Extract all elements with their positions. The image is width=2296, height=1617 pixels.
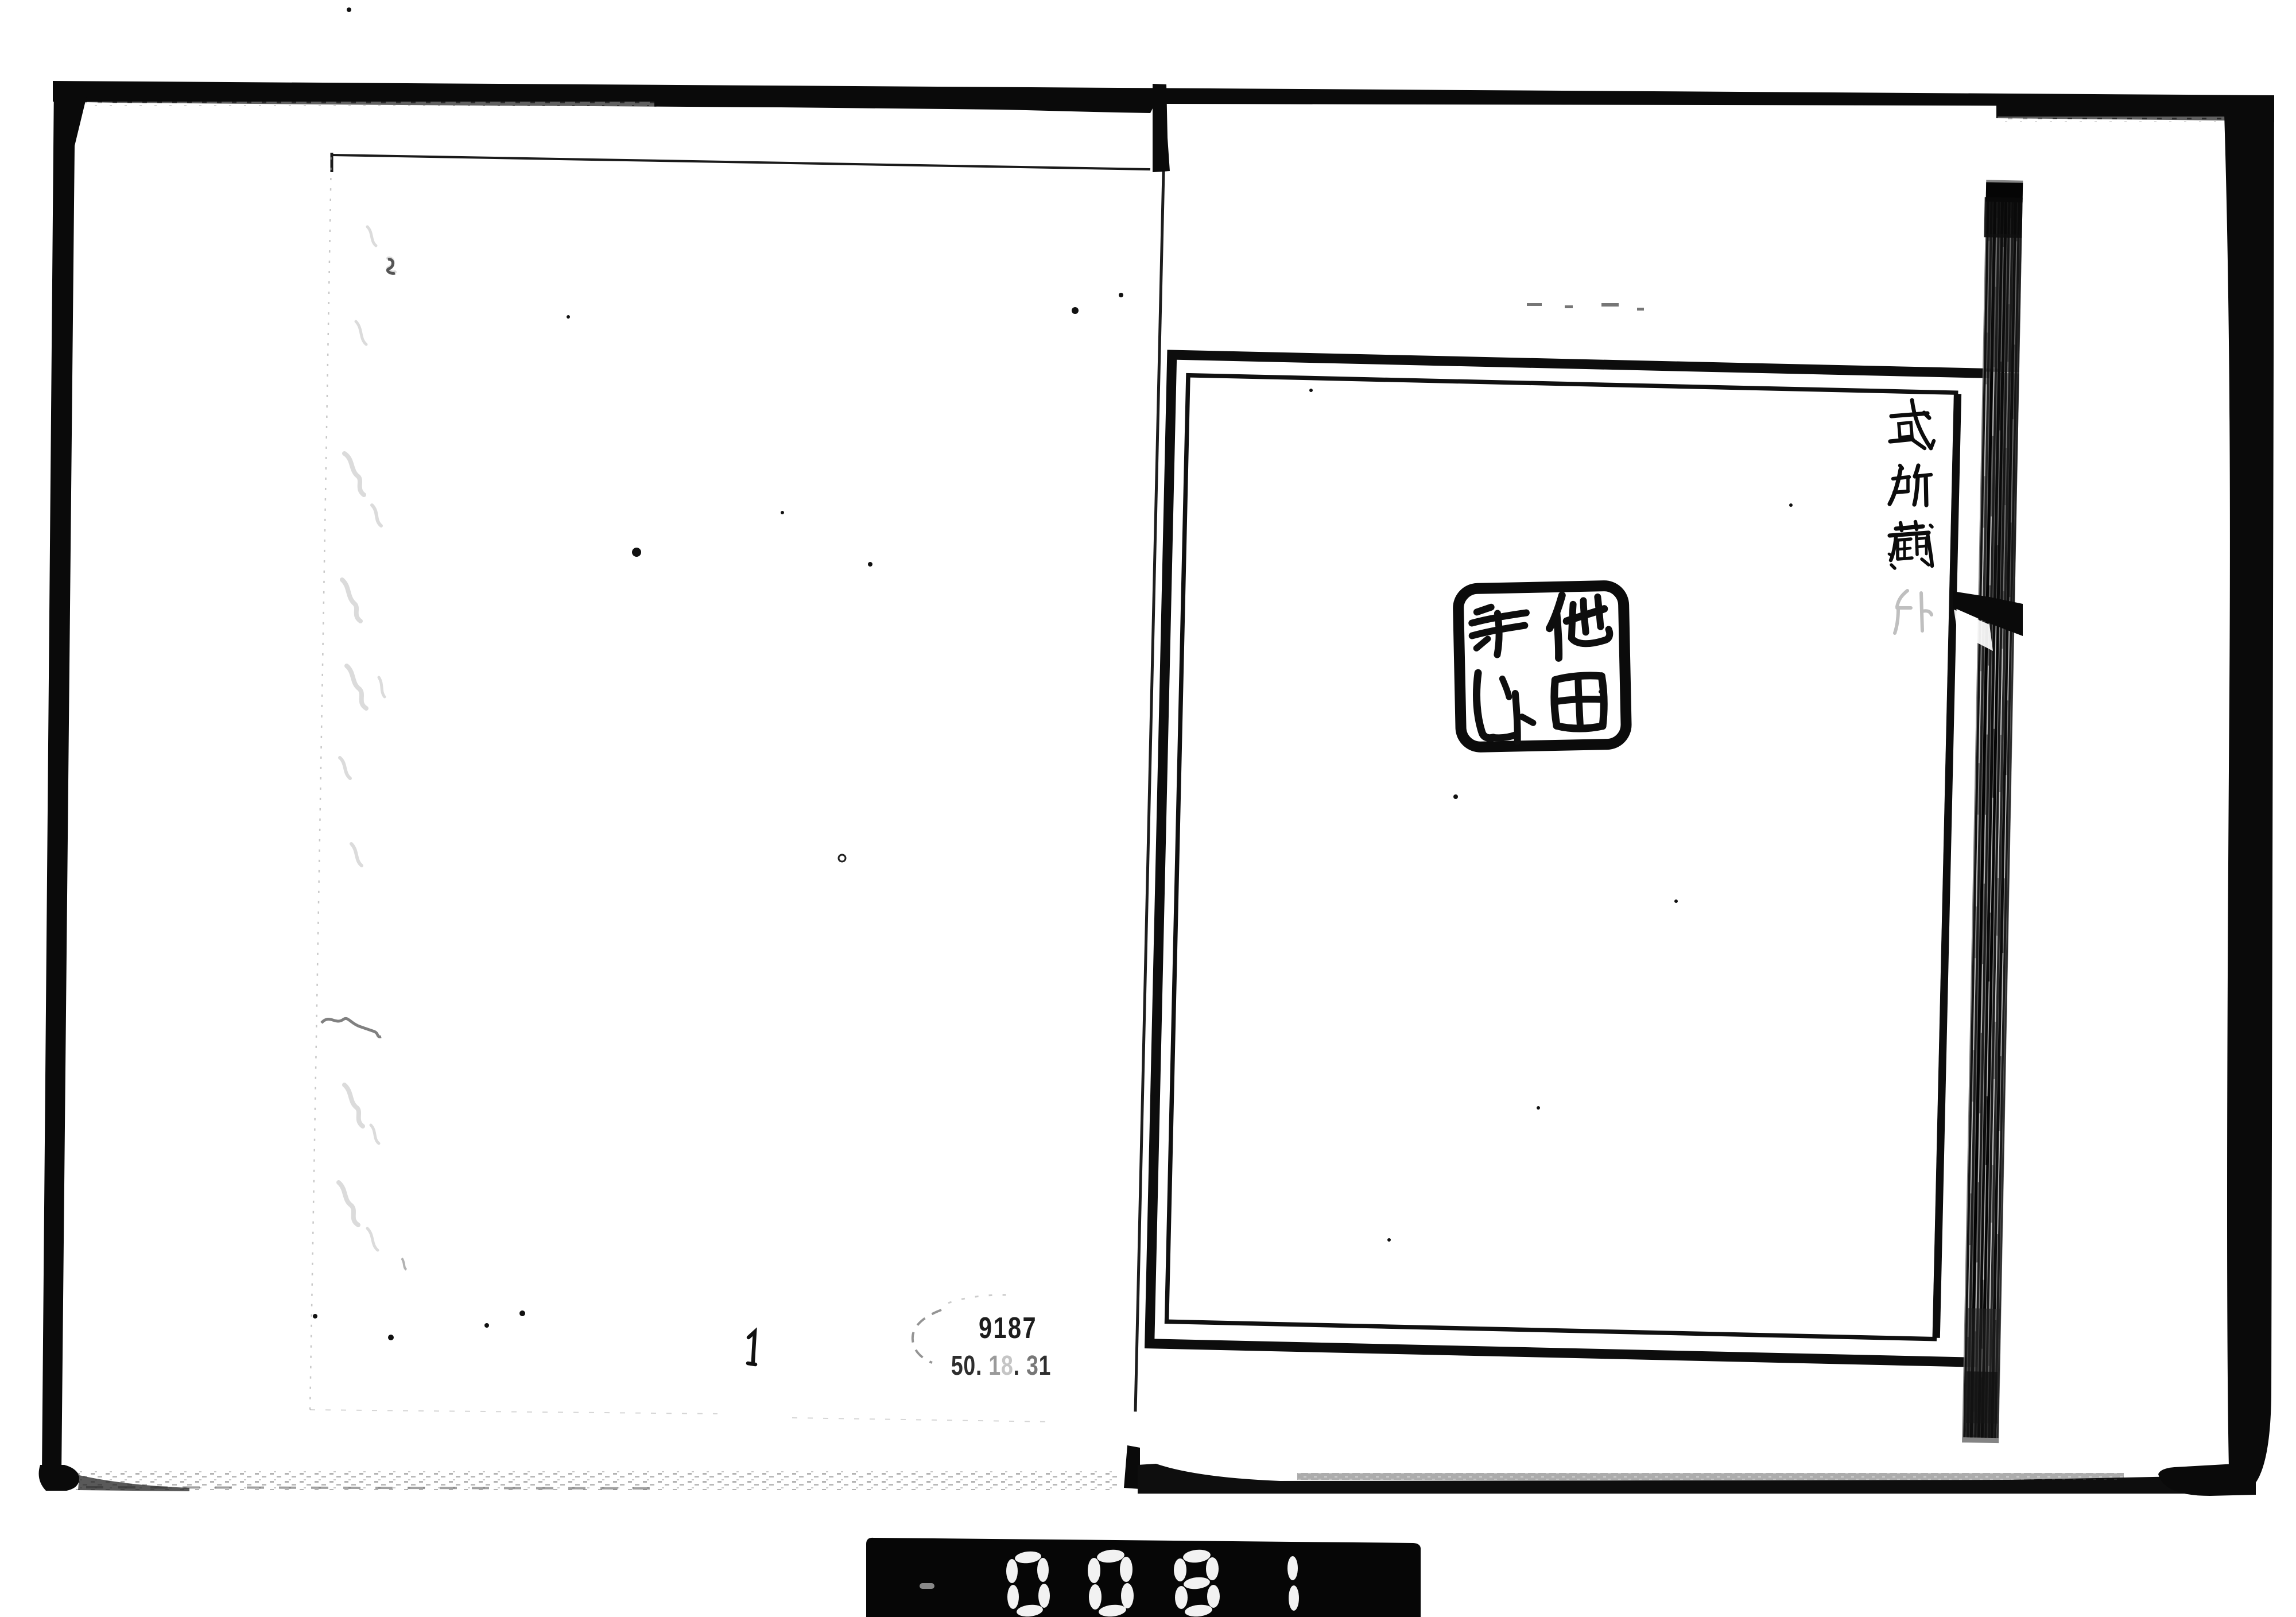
svg-text:50. 18. 31: 50. 18. 31 [951,1351,1051,1382]
svg-text:9187: 9187 [979,1311,1037,1345]
